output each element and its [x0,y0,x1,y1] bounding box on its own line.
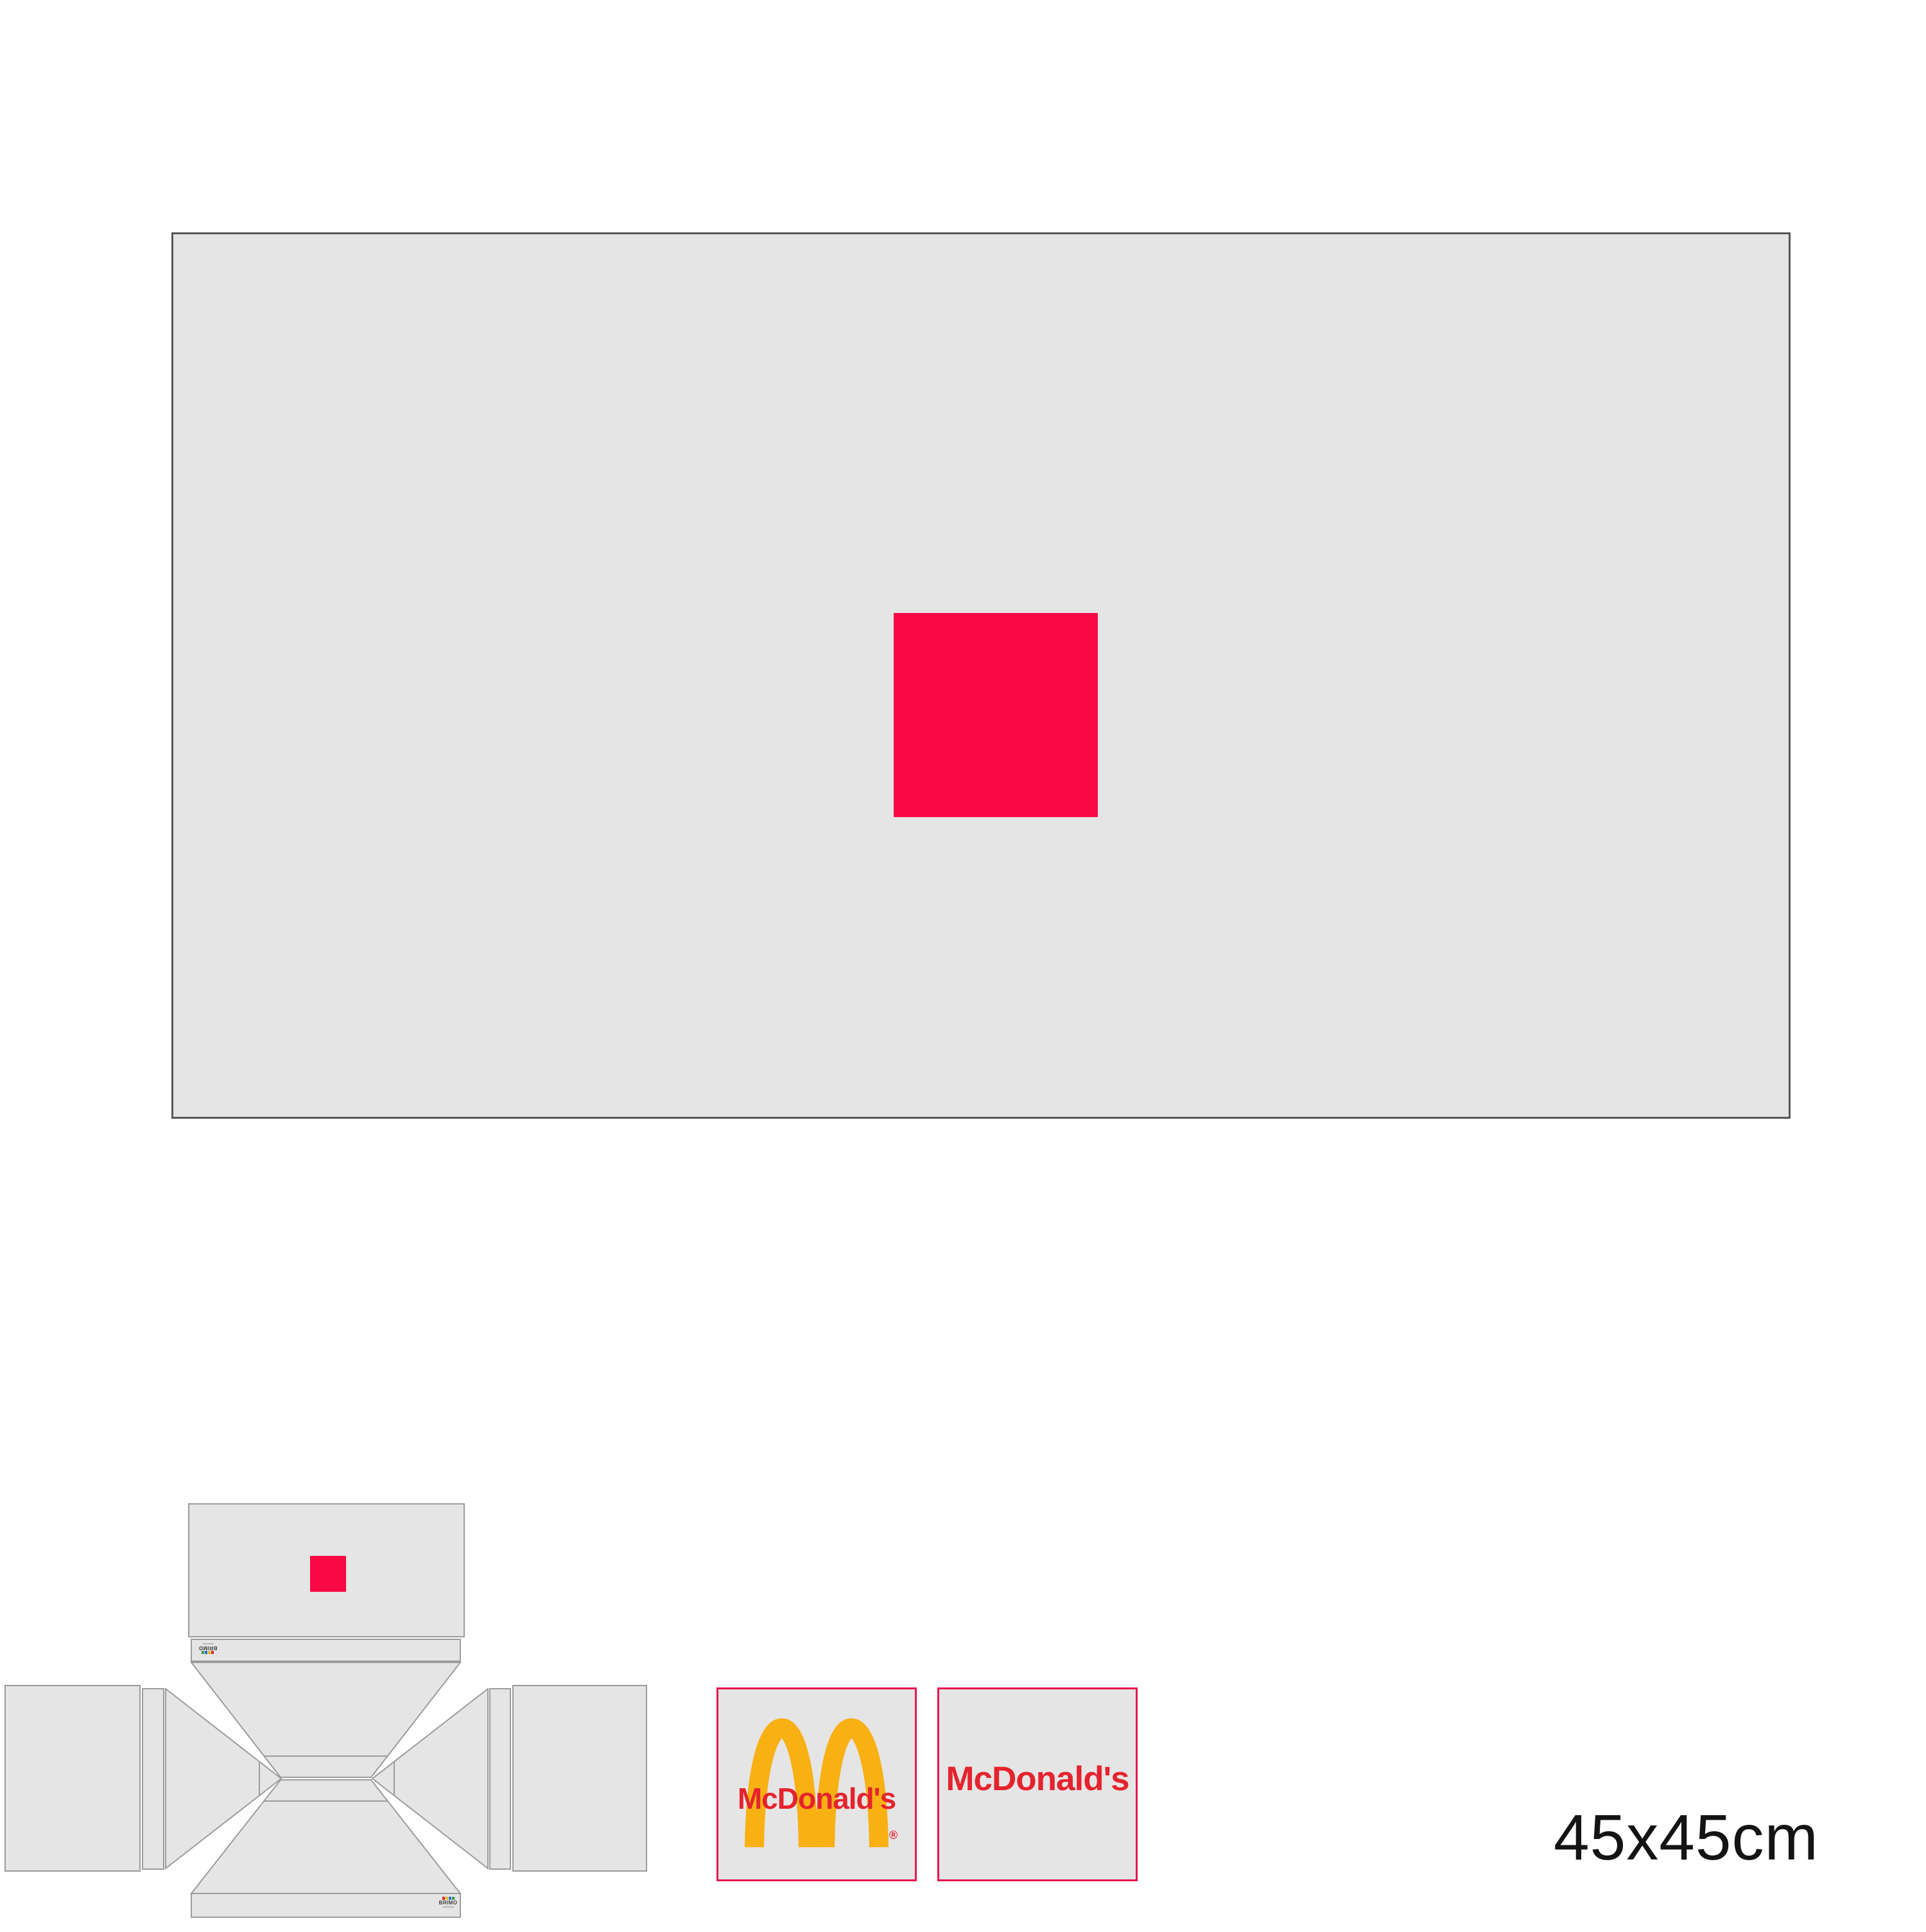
mcdonalds-logo-card-wordmark: McDonald's [937,1687,1138,1881]
brimo-logo-subline [442,1906,454,1908]
dieline-right-strip [490,1689,510,1869]
size-label: 45x45cm [1554,1802,1819,1873]
main-print-panel [171,232,1791,1119]
dieline-left-strip [143,1689,164,1869]
golden-arches-icon [736,1711,897,1847]
brimo-logo-subline [202,1643,214,1644]
dieline-left-panel [5,1686,140,1871]
brimo-logo-text: BRIMO [439,1901,458,1906]
brimo-logo-text: BRIMO [199,1645,218,1650]
dieline-top-strip [191,1639,460,1661]
mcdonalds-logo-card-arches: McDonald's ® [716,1687,917,1881]
brimo-logo-bottom: BRIMO [438,1897,458,1908]
dieline-right-panel [513,1686,646,1871]
accent-square-mini [310,1556,346,1592]
brimo-logo-top: BRIMO [198,1643,218,1654]
dieline-bottom-strip [191,1893,460,1917]
registered-trademark: ® [889,1829,898,1841]
accent-square-large [894,613,1098,817]
brimo-colorbar-icon [202,1651,214,1654]
mcdonalds-wordmark: McDonald's [939,1762,1136,1796]
mcdonalds-wordmark: McDonald's [718,1784,915,1813]
dieline-net [0,1489,661,1932]
